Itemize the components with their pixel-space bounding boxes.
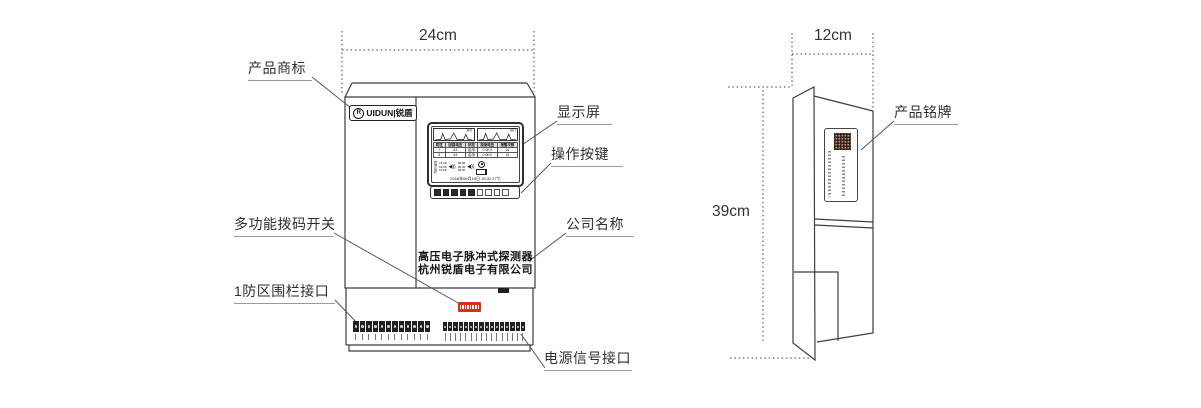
brand-logo-icon: R <box>353 108 364 119</box>
terminal-hole <box>413 325 416 328</box>
diagram-canvas: 24cm 12cm 39cm 产品商标 显示屏 操作按键 多功能拨码开关 公司名… <box>0 0 1201 408</box>
terminal-block <box>405 321 411 332</box>
diagram-linework <box>0 0 1201 408</box>
terminal-block <box>490 322 494 331</box>
terminal-label-mark <box>401 334 402 340</box>
screw-terminal[interactable] <box>490 322 494 341</box>
callout-buttons: 操作按键 <box>551 144 623 167</box>
operation-button[interactable] <box>494 189 501 196</box>
terminal-hole <box>486 326 488 328</box>
qr-code <box>834 133 851 150</box>
terminal-label-mark <box>481 333 482 341</box>
terminal-label-mark <box>517 333 518 341</box>
terminal-hole <box>501 326 503 328</box>
product-nameplate <box>824 128 858 202</box>
screw-terminal[interactable] <box>448 322 452 341</box>
terminal-block <box>399 321 405 332</box>
screw-terminal[interactable] <box>399 321 405 340</box>
terminal-label-mark <box>450 333 451 341</box>
status-label-stack: 布 撤 旁 状 <box>434 161 437 175</box>
aux-connector <box>498 288 509 293</box>
screw-terminal[interactable] <box>373 321 379 340</box>
panel-text: 高压电子脉冲式探测器 杭州锐盾电子有限公司 <box>416 251 535 277</box>
dip-lever[interactable] <box>465 305 467 309</box>
terminal-hole <box>496 326 498 328</box>
terminal-block <box>373 321 379 332</box>
callout-power-port: 电源信号接口 <box>544 348 632 371</box>
nameplate-vertical-text <box>828 151 831 197</box>
terminal-block <box>443 322 447 331</box>
screw-terminal[interactable] <box>521 322 525 341</box>
operation-button[interactable] <box>477 189 484 196</box>
terminal-block <box>516 322 520 331</box>
terminal-hole <box>400 325 403 328</box>
terminal-label-mark <box>486 333 487 341</box>
callout-trademark: 产品商标 <box>248 58 312 81</box>
screw-terminal[interactable] <box>516 322 520 341</box>
brand-logo-text: UIDUN|锐盾 <box>366 107 412 119</box>
terminal-block <box>479 322 483 331</box>
terminal-label-mark <box>414 334 415 340</box>
dip-lever[interactable] <box>472 305 474 309</box>
terminal-label-mark <box>512 333 513 341</box>
terminal-block <box>510 322 514 331</box>
terminal-hole <box>374 325 377 328</box>
screw-terminal[interactable] <box>495 322 499 341</box>
button-group-dark <box>434 189 475 196</box>
screw-terminal[interactable] <box>425 321 431 340</box>
screw-terminal[interactable] <box>453 322 457 341</box>
time-stack-left: 15:08 18:08 19:08 <box>439 162 447 173</box>
terminal-block <box>448 322 452 331</box>
fence-terminal-strip <box>353 321 430 340</box>
screw-terminal[interactable] <box>360 321 366 340</box>
screw-terminal[interactable] <box>443 322 447 341</box>
screw-terminal[interactable] <box>464 322 468 341</box>
screw-terminal[interactable] <box>474 322 478 341</box>
operation-button[interactable] <box>502 189 509 196</box>
terminal-hole <box>512 326 514 328</box>
cell: 15 <box>497 153 517 158</box>
waveform-chart-2: 运行 <box>477 128 519 141</box>
screw-terminal[interactable] <box>500 322 504 341</box>
battery-icon <box>476 169 487 175</box>
screw-terminal[interactable] <box>366 321 372 340</box>
terminal-hole <box>361 325 364 328</box>
screen-datetime: 2016年06月15日 15:32 27℃ <box>433 176 518 181</box>
lcd-screen-content: 运行 运行 防区 回路电压 状态 探测电压 报警次数 <box>431 126 520 183</box>
waveform-charts: 运行 运行 <box>433 128 518 141</box>
terminal-block <box>425 321 431 332</box>
screen-status-row: 布 撤 旁 状 15:08 18:08 19:08 ◀)) 08:08 08:4… <box>433 158 518 176</box>
terminal-label-mark <box>460 333 461 341</box>
side-width-dimension: 12cm <box>795 27 871 45</box>
terminal-label-mark <box>476 333 477 341</box>
brand-logo: R UIDUN|锐盾 <box>349 105 417 121</box>
nameplate-vertical-text <box>842 156 845 196</box>
screw-terminal[interactable] <box>469 322 473 341</box>
terminal-label-mark <box>445 333 446 341</box>
company-name-text: 杭州锐盾电子有限公司 <box>416 264 535 277</box>
time-value: 08:00 <box>458 169 466 173</box>
terminal-hole <box>517 326 519 328</box>
terminal-hole <box>506 326 508 328</box>
terminal-block <box>459 322 463 331</box>
terminal-label-mark <box>362 334 363 340</box>
dip-switch[interactable] <box>458 302 481 312</box>
operation-button[interactable] <box>485 189 492 196</box>
zone-status-table: 防区 回路电压 状态 探测电压 报警次数 Ⅰ 63 启用 0.0KV 1s Ⅱ … <box>433 142 518 158</box>
terminal-label-mark <box>427 334 428 340</box>
terminal-label-mark <box>375 334 376 340</box>
operation-button[interactable] <box>434 189 441 196</box>
terminal-label-mark <box>407 334 408 340</box>
terminal-hole <box>394 325 397 328</box>
terminal-block <box>495 322 499 331</box>
zone-table-row: Ⅱ 64 启用 0.0KV 15 <box>434 153 518 158</box>
terminal-block <box>453 322 457 331</box>
cell: Ⅱ <box>434 153 446 158</box>
terminal-hole <box>420 325 423 328</box>
terminal-label-mark <box>355 334 356 340</box>
lcd-screen: 运行 运行 防区 回路电压 状态 探测电压 报警次数 <box>427 122 524 187</box>
status-label: 状 <box>434 171 437 175</box>
terminal-label-mark <box>368 334 369 340</box>
screw-terminal[interactable] <box>459 322 463 341</box>
operation-button[interactable] <box>451 189 458 196</box>
terminal-block <box>464 322 468 331</box>
screw-terminal[interactable] <box>379 321 385 340</box>
screw-terminal[interactable] <box>485 322 489 341</box>
cell: 64 <box>445 153 465 158</box>
terminal-hole <box>444 326 446 328</box>
terminal-hole <box>426 325 429 328</box>
terminal-label-mark <box>507 333 508 341</box>
callout-display: 显示屏 <box>557 102 612 125</box>
terminal-label-mark <box>381 334 382 340</box>
cell: 0.0KV <box>477 153 497 158</box>
dip-lever[interactable] <box>462 305 464 309</box>
terminal-block <box>353 321 359 332</box>
terminal-label-mark <box>388 334 389 340</box>
terminal-hole <box>522 326 524 328</box>
terminal-hole <box>449 326 451 328</box>
terminal-hole <box>454 326 456 328</box>
cell: 启用 <box>465 153 477 158</box>
eye-icon <box>478 161 485 168</box>
dip-lever[interactable] <box>478 305 480 309</box>
terminal-block <box>386 321 392 332</box>
terminal-label-mark <box>496 333 497 341</box>
terminal-label-mark <box>455 333 456 341</box>
screw-terminal[interactable] <box>418 321 424 340</box>
terminal-label-mark <box>522 333 523 341</box>
button-group-light <box>477 189 509 196</box>
terminal-hole <box>381 325 384 328</box>
waveform-1-status: 运行 <box>466 129 472 132</box>
waveform-chart-1: 运行 <box>433 128 475 141</box>
time-value: 19:08 <box>439 169 447 173</box>
terminal-hole <box>460 326 462 328</box>
terminal-hole <box>355 325 358 328</box>
waveform-2-status: 运行 <box>510 129 516 132</box>
terminal-block <box>379 321 385 332</box>
callout-company: 公司名称 <box>566 214 634 237</box>
terminal-hole <box>491 326 493 328</box>
product-name-text: 高压电子脉冲式探测器 <box>416 251 535 264</box>
terminal-hole <box>368 325 371 328</box>
terminal-label-mark <box>491 333 492 341</box>
dip-lever[interactable] <box>470 305 472 309</box>
speaker-icon: ◀)) <box>449 166 456 170</box>
terminal-block <box>392 321 398 332</box>
power-signal-terminal-strip <box>443 322 525 341</box>
terminal-block <box>360 321 366 332</box>
screw-terminal[interactable] <box>479 322 483 341</box>
terminal-block <box>485 322 489 331</box>
terminal-hole <box>470 326 472 328</box>
operation-button[interactable] <box>460 189 467 196</box>
operation-button[interactable] <box>468 189 475 196</box>
dip-lever[interactable] <box>467 305 469 309</box>
terminal-hole <box>465 326 467 328</box>
side-height-dimension: 39cm <box>703 203 759 221</box>
terminal-block <box>418 321 424 332</box>
callout-dip-switch: 多功能拨码开关 <box>234 214 334 237</box>
screw-terminal[interactable] <box>510 322 514 341</box>
terminal-block <box>474 322 478 331</box>
dip-lever[interactable] <box>475 305 477 309</box>
terminal-block <box>521 322 525 331</box>
terminal-label-mark <box>394 334 395 340</box>
screw-terminal[interactable] <box>405 321 411 340</box>
terminal-hole <box>407 325 410 328</box>
terminal-block <box>469 322 473 331</box>
time-stack-right: 08:08 08:45 08:00 <box>458 162 466 173</box>
terminal-label-mark <box>471 333 472 341</box>
terminal-hole <box>387 325 390 328</box>
waveform-2 <box>478 131 518 142</box>
terminal-block <box>412 321 418 332</box>
terminal-label-mark <box>420 334 421 340</box>
terminal-block <box>366 321 372 332</box>
callout-fence-port: 1防区围栏接口 <box>234 281 335 304</box>
screw-terminal[interactable] <box>386 321 392 340</box>
screw-terminal[interactable] <box>353 321 359 340</box>
screw-terminal[interactable] <box>505 322 509 341</box>
operation-button[interactable] <box>443 189 450 196</box>
waveform-1 <box>434 131 474 142</box>
terminal-block <box>505 322 509 331</box>
front-width-dimension: 24cm <box>400 27 476 45</box>
terminal-hole <box>480 326 482 328</box>
screw-terminal[interactable] <box>392 321 398 340</box>
terminal-label-mark <box>502 333 503 341</box>
terminal-block <box>500 322 504 331</box>
terminal-label-mark <box>465 333 466 341</box>
terminal-hole <box>475 326 477 328</box>
operation-button-bar <box>430 186 520 199</box>
status-icon-stack <box>476 161 487 175</box>
screw-terminal[interactable] <box>412 321 418 340</box>
callout-nameplate: 产品铭牌 <box>894 102 958 125</box>
dip-lever[interactable] <box>460 305 462 309</box>
speaker-icon: ◀)) <box>467 166 474 170</box>
